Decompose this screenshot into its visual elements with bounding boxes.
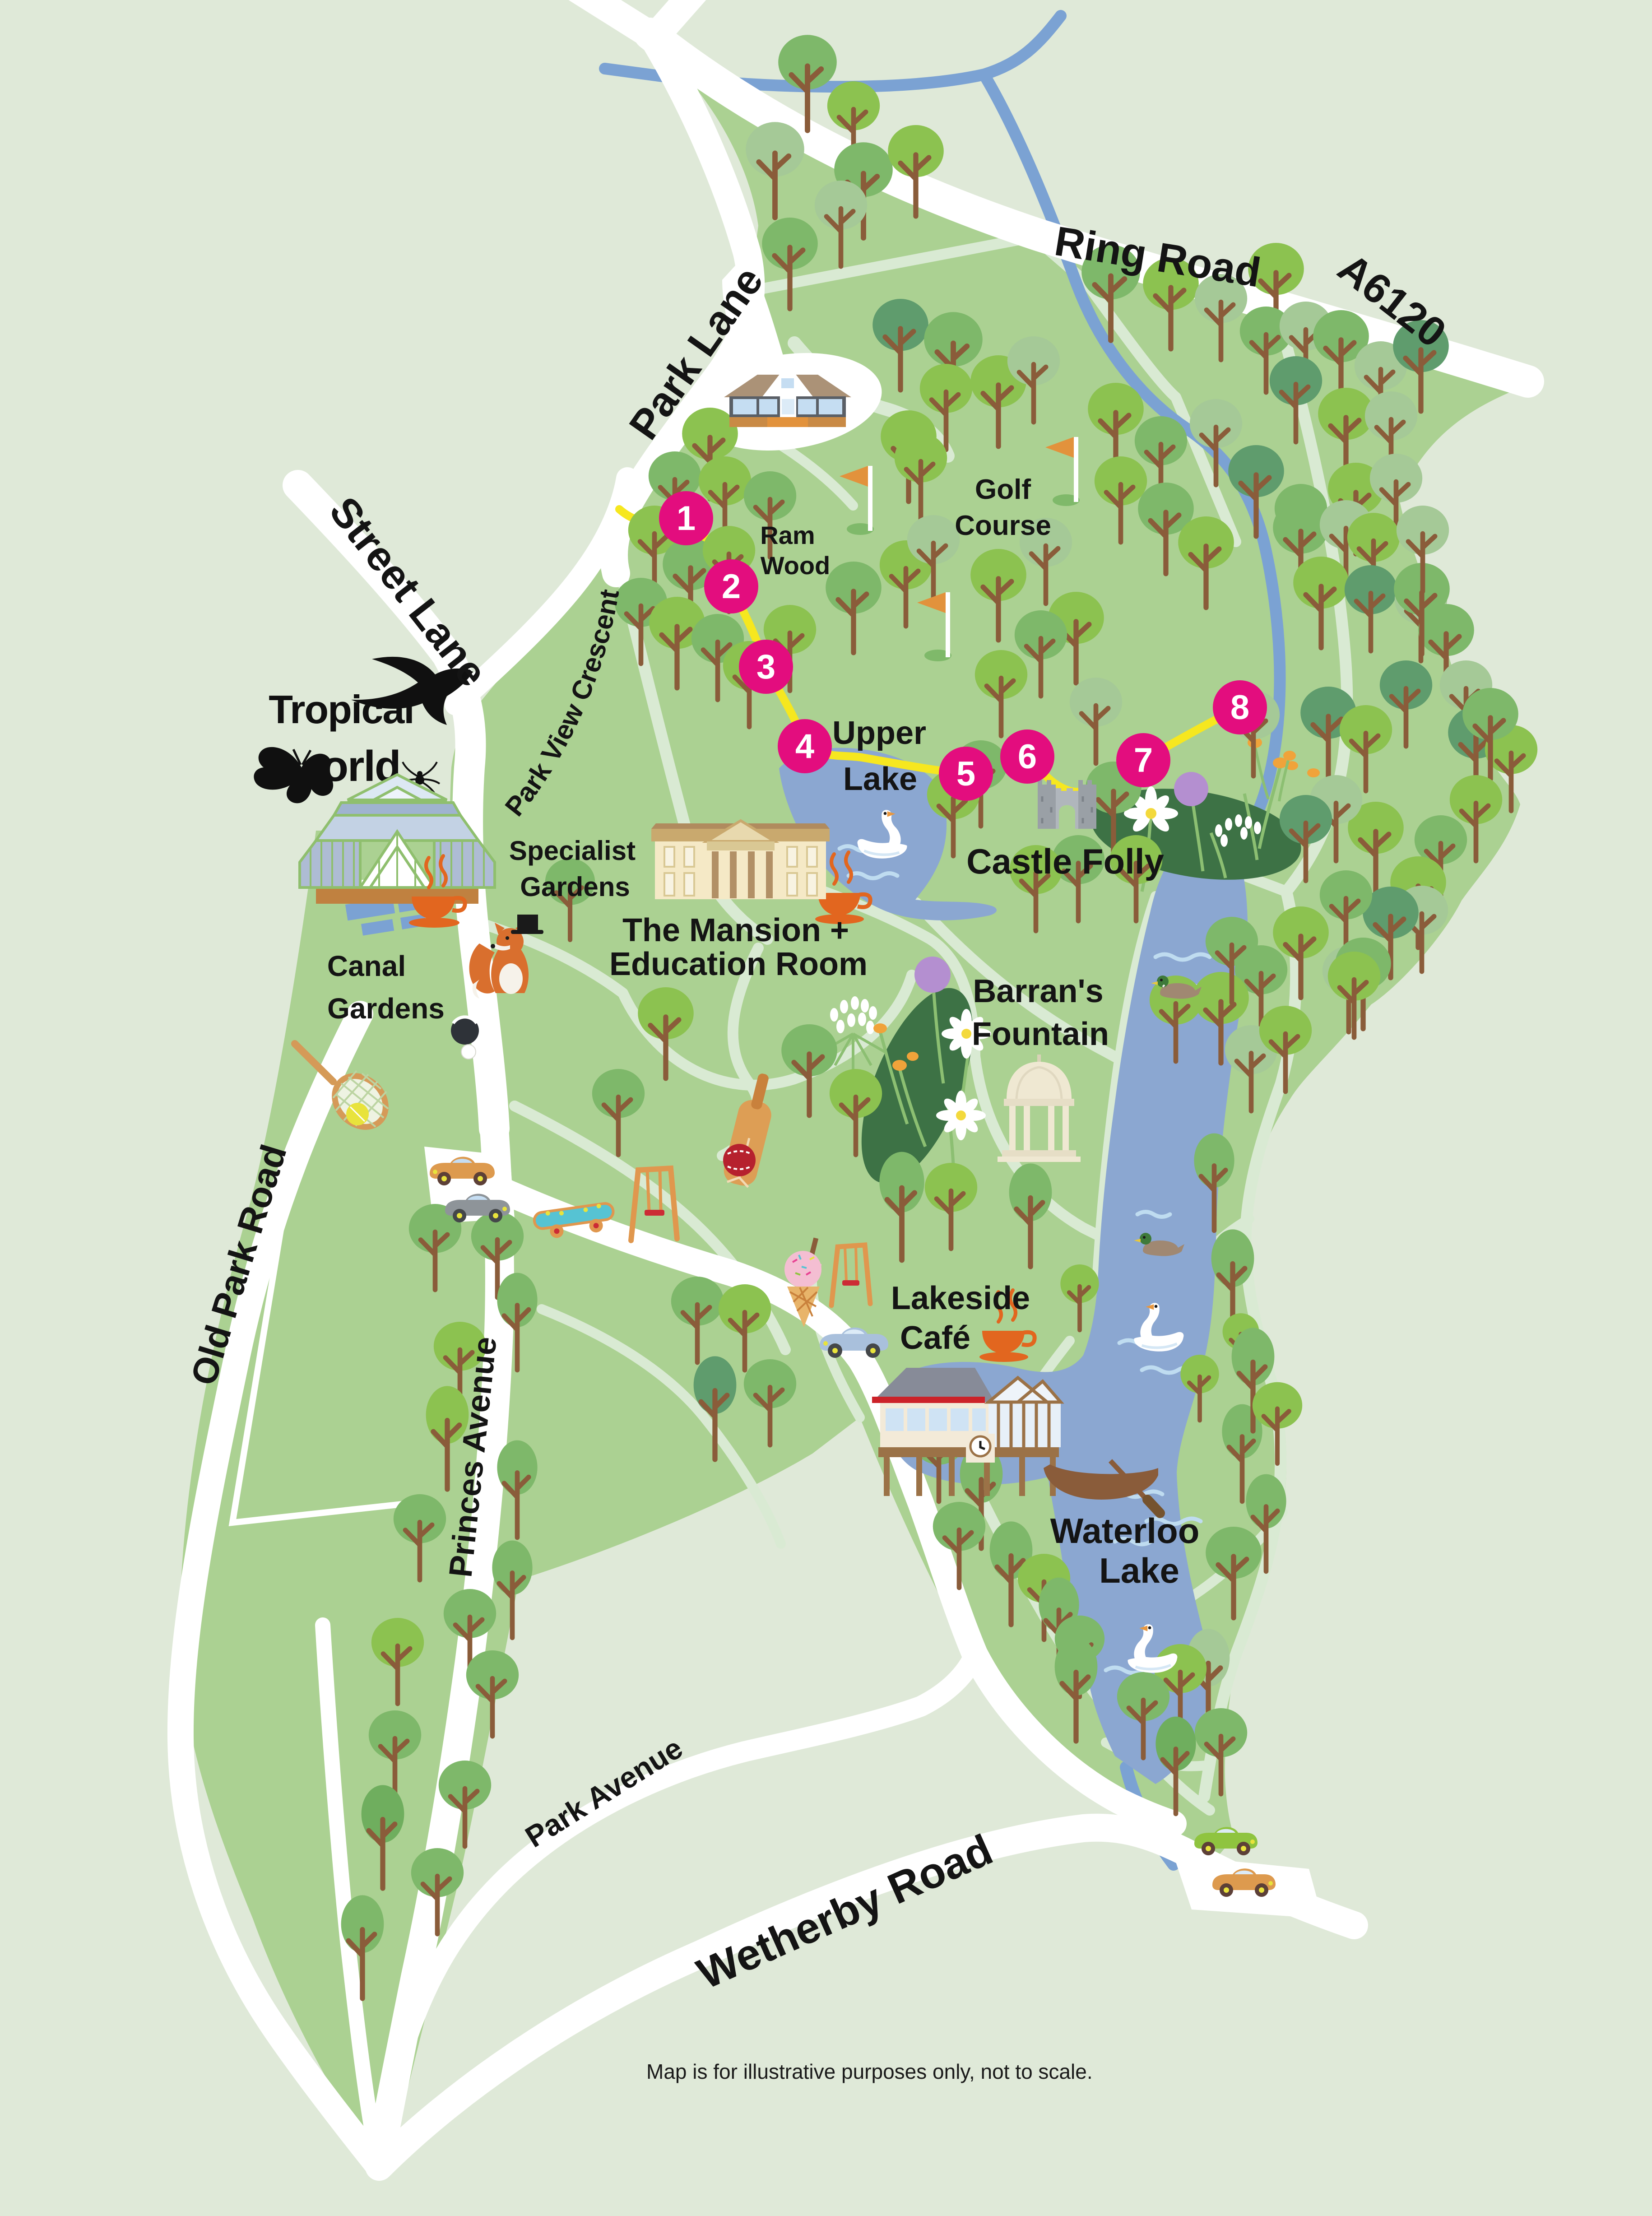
svg-text:1: 1 bbox=[677, 499, 696, 538]
svg-text:Ram: Ram bbox=[760, 521, 815, 549]
svg-text:Golf: Golf bbox=[975, 474, 1031, 505]
svg-text:Map is for illustrative purpos: Map is for illustrative purposes only, n… bbox=[646, 2060, 1093, 2083]
svg-text:6: 6 bbox=[1018, 738, 1037, 776]
svg-text:Specialist: Specialist bbox=[509, 836, 636, 866]
svg-text:Lake: Lake bbox=[843, 761, 917, 797]
svg-text:8: 8 bbox=[1230, 688, 1249, 727]
svg-text:Castle Folly: Castle Folly bbox=[966, 841, 1164, 881]
svg-text:Tropical: Tropical bbox=[269, 687, 413, 732]
svg-text:5: 5 bbox=[956, 755, 975, 793]
svg-text:Fountain: Fountain bbox=[972, 1016, 1109, 1052]
svg-text:7: 7 bbox=[1134, 741, 1153, 780]
svg-text:Lakeside: Lakeside bbox=[891, 1280, 1030, 1316]
svg-text:3: 3 bbox=[756, 648, 775, 686]
svg-text:4: 4 bbox=[795, 727, 814, 766]
svg-text:Canal: Canal bbox=[327, 950, 406, 982]
svg-text:Education Room: Education Room bbox=[609, 946, 868, 982]
svg-text:Gardens: Gardens bbox=[520, 872, 630, 902]
svg-text:Course: Course bbox=[955, 510, 1051, 541]
svg-text:Gardens: Gardens bbox=[327, 992, 445, 1025]
svg-text:The Mansion +: The Mansion + bbox=[622, 912, 849, 948]
svg-text:Barran's: Barran's bbox=[973, 973, 1103, 1009]
svg-text:Café: Café bbox=[900, 1320, 970, 1356]
svg-text:Waterloo: Waterloo bbox=[1050, 1511, 1200, 1551]
svg-text:Lake: Lake bbox=[1099, 1551, 1179, 1590]
svg-text:Upper: Upper bbox=[832, 715, 926, 751]
svg-text:Wood: Wood bbox=[761, 551, 830, 580]
svg-text:2: 2 bbox=[722, 567, 741, 606]
